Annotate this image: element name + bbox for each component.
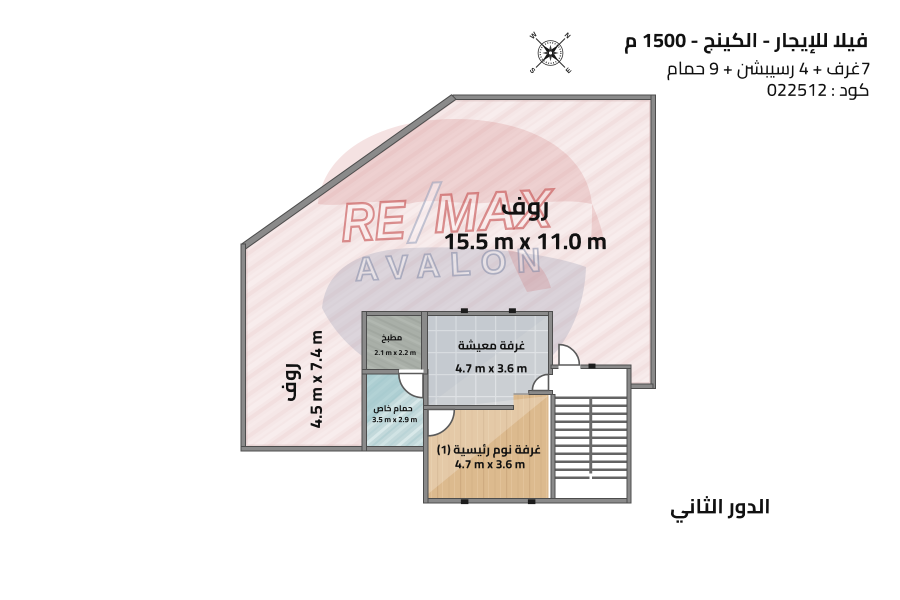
svg-text:RE: RE <box>340 190 409 253</box>
